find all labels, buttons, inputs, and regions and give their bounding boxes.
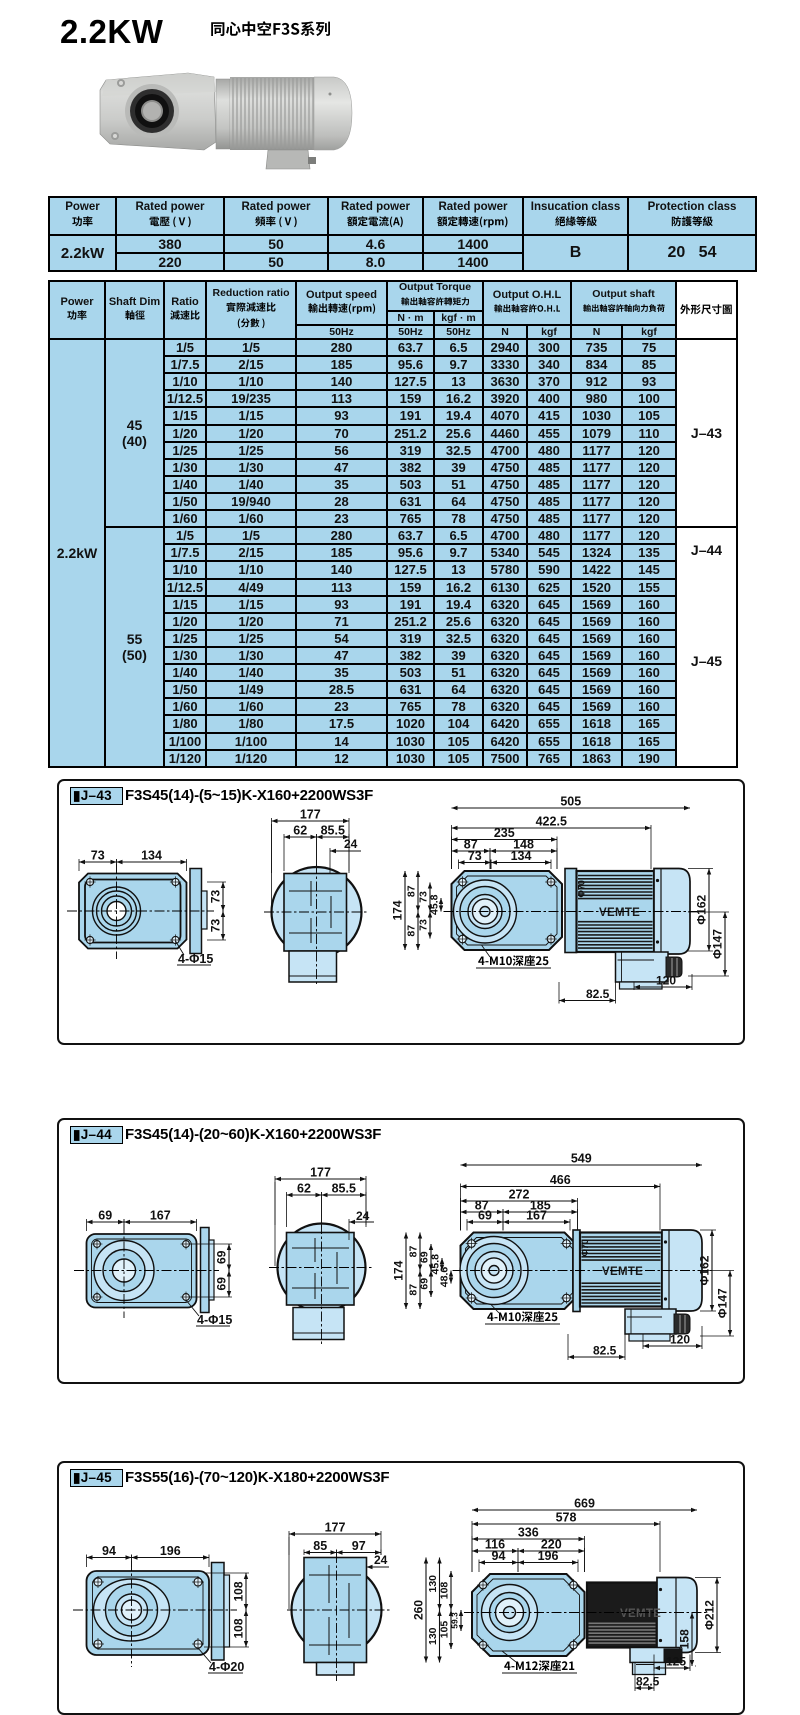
svg-text:VEMTE: VEMTE: [602, 1266, 643, 1278]
svg-text:108: 108: [232, 1618, 246, 1638]
svg-text:134: 134: [141, 849, 162, 863]
svg-text:73: 73: [209, 890, 223, 904]
svg-text:158: 158: [678, 1629, 692, 1649]
svg-text:87: 87: [406, 925, 418, 937]
svg-text:260: 260: [412, 1600, 426, 1620]
svg-text:73: 73: [418, 919, 430, 931]
svg-text:177: 177: [310, 1166, 331, 1180]
svg-text:196: 196: [160, 1544, 181, 1558]
svg-text:272: 272: [509, 1188, 530, 1202]
svg-text:167: 167: [150, 1209, 171, 1223]
svg-text:130: 130: [427, 1575, 439, 1593]
svg-text:82.5: 82.5: [636, 1675, 660, 1689]
svg-text:120: 120: [656, 974, 676, 988]
svg-text:120: 120: [670, 1333, 690, 1347]
svg-text:59.3: 59.3: [450, 1612, 460, 1629]
svg-text:196: 196: [538, 1549, 559, 1563]
svg-text:4-Φ15: 4-Φ15: [197, 1313, 232, 1327]
svg-text:45.8: 45.8: [429, 894, 441, 915]
svg-text:48.6: 48.6: [439, 1267, 451, 1288]
svg-text:108: 108: [439, 1582, 451, 1600]
svg-text:85.5: 85.5: [332, 1182, 356, 1196]
svg-text:Φ162: Φ162: [695, 894, 709, 924]
svg-text:94: 94: [102, 1544, 116, 1558]
svg-text:Φ212: Φ212: [703, 1600, 717, 1630]
svg-text:69: 69: [98, 1209, 112, 1223]
svg-text:87: 87: [406, 885, 418, 897]
svg-text:177: 177: [300, 808, 321, 822]
svg-text:62: 62: [293, 824, 307, 838]
svg-text:466: 466: [550, 1173, 571, 1187]
svg-text:134: 134: [511, 849, 532, 863]
svg-text:62: 62: [297, 1182, 311, 1196]
svg-text:73: 73: [468, 849, 482, 863]
svg-text:108: 108: [232, 1581, 246, 1601]
svg-text:549: 549: [571, 1152, 592, 1166]
svg-text:336: 336: [518, 1526, 539, 1540]
svg-text:Φ70: Φ70: [577, 880, 587, 897]
svg-text:Φ147: Φ147: [711, 929, 725, 959]
svg-text:130: 130: [427, 1627, 439, 1645]
svg-text:177: 177: [325, 1521, 346, 1535]
svg-text:69: 69: [215, 1277, 229, 1291]
svg-text:174: 174: [392, 1260, 406, 1280]
svg-text:125: 125: [666, 1655, 686, 1669]
svg-text:Φ70: Φ70: [580, 1239, 590, 1256]
svg-text:82.5: 82.5: [593, 1344, 617, 1358]
svg-text:73: 73: [91, 849, 105, 863]
svg-text:69: 69: [478, 1209, 492, 1223]
svg-text:235: 235: [494, 826, 515, 840]
svg-text:VEMTE: VEMTE: [620, 1608, 661, 1620]
svg-text:578: 578: [556, 1511, 577, 1525]
svg-text:Φ147: Φ147: [716, 1288, 730, 1318]
svg-text:4-Φ15: 4-Φ15: [178, 952, 213, 966]
svg-text:422.5: 422.5: [536, 815, 567, 829]
svg-text:24: 24: [356, 1209, 370, 1223]
svg-text:85.5: 85.5: [321, 824, 345, 838]
svg-text:24: 24: [344, 837, 358, 851]
svg-text:94: 94: [492, 1549, 506, 1563]
svg-text:VEMTE: VEMTE: [599, 907, 640, 919]
svg-text:4-Φ20: 4-Φ20: [209, 1660, 244, 1674]
svg-text:82.5: 82.5: [586, 987, 610, 1001]
svg-text:69: 69: [215, 1250, 229, 1264]
svg-text:505: 505: [560, 795, 581, 809]
svg-text:73: 73: [209, 919, 223, 933]
svg-text:167: 167: [526, 1209, 547, 1223]
svg-text:85: 85: [313, 1539, 327, 1553]
svg-text:669: 669: [574, 1497, 595, 1511]
svg-text:97: 97: [352, 1539, 366, 1553]
svg-text:174: 174: [391, 900, 405, 920]
svg-text:24: 24: [374, 1553, 388, 1567]
svg-text:69: 69: [419, 1278, 431, 1290]
